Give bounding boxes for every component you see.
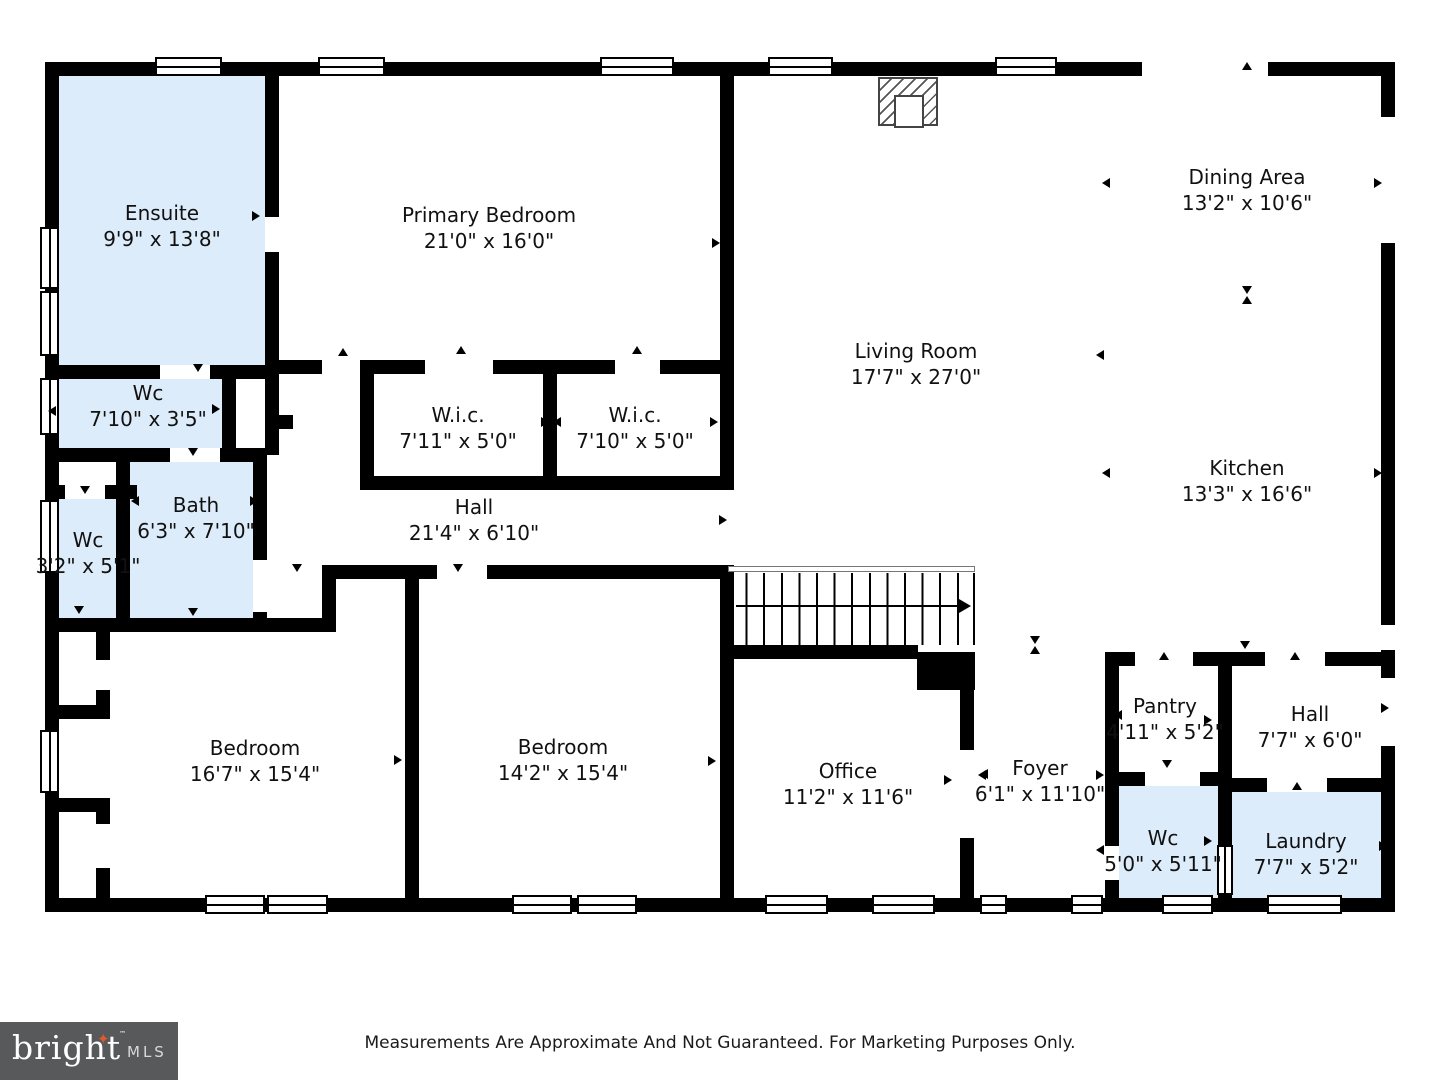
window [40,291,59,356]
door-arrow-icon [1242,62,1252,70]
room-name: Ensuite [103,200,221,226]
window [267,895,328,914]
wall [1218,778,1267,792]
wall [222,379,236,448]
room-label-living-room: Living Room17'7" x 27'0" [851,338,981,390]
room-label-bedroom-2: Bedroom14'2" x 15'4" [498,734,628,786]
window [577,895,637,914]
room-label-primary-bedroom: Primary Bedroom21'0" x 16'0" [402,202,576,254]
wall [493,360,615,374]
room-name: Dining Area [1182,164,1312,190]
wall [279,360,322,374]
room-label-dining-area: Dining Area13'2" x 10'6" [1182,164,1312,216]
fireplace-icon [878,77,938,126]
wall [210,365,279,379]
door-arrow-icon [1242,286,1252,294]
window [1267,895,1342,914]
window [40,730,59,793]
door-arrow-icon [710,417,718,427]
room-dimensions: 6'3" x 7'10" [137,518,255,544]
wall [45,448,170,462]
door-arrow-icon [1159,652,1169,660]
wall [487,565,734,579]
room-dimensions: 6'1" x 11'10" [975,781,1105,807]
disclaimer-text: Measurements Are Approximate And Not Gua… [0,1033,1440,1053]
door-arrow-icon [188,448,198,456]
wall [660,360,734,374]
window [980,895,1007,914]
room-name: Laundry [1254,828,1359,854]
wall [405,579,419,898]
door-arrow-icon [1096,350,1104,360]
room-name: Hall [409,494,539,520]
window [600,57,674,76]
door-arrow-icon [708,756,716,766]
room-dimensions: 13'2" x 10'6" [1182,190,1312,216]
room-name: W.i.c. [576,402,694,428]
wall-opening [1381,625,1395,650]
wall [96,690,110,719]
stair-treads [728,573,975,645]
wall [322,565,437,579]
door-arrow-icon [1379,841,1387,851]
window [768,57,833,76]
floorplan-page: Ensuite9'9" x 13'8"Primary Bedroom21'0" … [0,0,1440,1080]
door-arrow-icon [252,211,260,221]
door-arrow-icon [1381,703,1389,713]
window [512,895,572,914]
room-dimensions: 21'4" x 6'10" [409,520,539,546]
wall [917,652,975,690]
room-label-hall-1: Hall21'4" x 6'10" [409,494,539,546]
door-arrow-icon [188,608,198,616]
room-label-foyer: Foyer6'1" x 11'10" [975,755,1105,807]
stair-stringer [728,566,975,572]
door-arrow-icon [632,346,642,354]
room-name: Bedroom [190,735,320,761]
room-dimensions: 9'9" x 13'8" [103,226,221,252]
room-name: Kitchen [1182,455,1312,481]
room-label-wic-1: W.i.c.7'11" x 5'0" [399,402,517,454]
door-arrow-icon [1102,178,1110,188]
door-arrow-icon [1374,468,1382,478]
room-label-office: Office11'2" x 11'6" [783,758,913,810]
door-arrow-icon [212,404,220,414]
door-arrow-icon [719,515,727,525]
room-name: Wc [89,380,207,406]
window [40,227,59,289]
room-dimensions: 3'2" x 5'1" [36,553,141,579]
door-arrow-icon [1096,845,1104,855]
room-name: Primary Bedroom [402,202,576,228]
window [872,895,935,914]
door-arrow-icon [46,211,54,221]
door-arrow-icon [553,417,561,427]
door-arrow-icon [338,348,348,356]
door-arrow-icon [1374,178,1382,188]
room-dimensions: 7'7" x 6'0" [1258,727,1363,753]
wall [360,360,374,490]
room-name: Bath [137,492,255,518]
room-name: Living Room [851,338,981,364]
window [205,895,265,914]
room-dimensions: 5'0" x 5'11" [1104,851,1222,877]
door-arrow-icon [1290,652,1300,660]
door-arrow-icon [1030,646,1040,654]
room-dimensions: 16'7" x 15'4" [190,761,320,787]
door-arrow-icon [944,775,952,785]
door-arrow-icon [726,773,734,783]
room-name: Foyer [975,755,1105,781]
room-label-laundry: Laundry7'7" x 5'2" [1254,828,1359,880]
door-arrow-icon [1030,636,1040,644]
door-arrow-icon [1102,468,1110,478]
room-label-ensuite: Ensuite9'9" x 13'8" [103,200,221,252]
window [155,57,222,76]
room-label-wic-2: W.i.c.7'10" x 5'0" [576,402,694,454]
wall [960,838,974,898]
room-label-kitchen: Kitchen13'3" x 16'6" [1182,455,1312,507]
window [318,57,385,76]
wall [45,365,160,379]
wall [1105,772,1145,786]
room-dimensions: 14'2" x 15'4" [498,760,628,786]
room-dimensions: 13'3" x 16'6" [1182,481,1312,507]
wall [1105,652,1135,666]
wall [45,485,65,499]
room-label-wc-3: Wc5'0" x 5'11" [1104,825,1222,877]
wall [96,632,110,660]
wall [1325,652,1395,666]
wall [265,62,279,217]
room-name: Wc [36,527,141,553]
door-arrow-icon [1240,641,1250,649]
door-arrow-icon [292,564,302,572]
fireplace-opening [894,95,924,128]
window [995,57,1057,76]
wall [96,798,110,824]
door-arrow-icon [456,346,466,354]
room-dimensions: 7'10" x 3'5" [89,406,207,432]
wall-opening [1381,117,1395,243]
stair-direction-arrow-icon [959,599,971,613]
wall [265,415,293,429]
wall [45,618,336,632]
door-arrow-icon [48,406,56,416]
room-name: W.i.c. [399,402,517,428]
wall [1193,652,1265,666]
room-label-bath: Bath6'3" x 7'10" [137,492,255,544]
wall [365,360,425,374]
stair-direction-line [736,605,957,607]
wall [360,476,734,490]
room-label-pantry: Pantry4'11" x 5'2" [1106,693,1224,745]
room-label-bedroom-1: Bedroom16'7" x 15'4" [190,735,320,787]
door-arrow-icon [80,486,90,494]
wall [1327,778,1395,792]
wall [220,448,266,462]
room-name: Pantry [1106,693,1224,719]
door-arrow-icon [1162,760,1172,768]
floorplan-canvas: Ensuite9'9" x 13'8"Primary Bedroom21'0" … [0,0,1440,960]
room-dimensions: 4'11" x 5'2" [1106,719,1224,745]
room-name: Office [783,758,913,784]
door-arrow-icon [394,755,402,765]
room-dimensions: 11'2" x 11'6" [783,784,913,810]
wall [720,62,734,490]
room-dimensions: 7'10" x 5'0" [576,428,694,454]
room-name: Hall [1258,701,1363,727]
room-name: Bedroom [498,734,628,760]
room-label-hall-2: Hall7'7" x 6'0" [1258,701,1363,753]
wall [96,868,110,912]
wall [265,252,279,379]
door-arrow-icon [1242,296,1252,304]
door-arrow-icon [712,238,720,248]
room-dimensions: 17'7" x 27'0" [851,364,981,390]
room-dimensions: 7'11" x 5'0" [399,428,517,454]
wall [728,645,918,659]
room-label-wc-1: Wc7'10" x 3'5" [89,380,207,432]
door-arrow-icon [193,364,203,372]
window [765,895,828,914]
door-arrow-icon [541,417,549,427]
door-arrow-icon [453,564,463,572]
door-arrow-icon [842,651,852,659]
door-arrow-icon [408,755,416,765]
door-arrow-icon [1292,782,1302,790]
window [1162,895,1213,914]
door-arrow-icon [74,606,84,614]
wall [1105,880,1119,912]
room-label-wc-2: Wc3'2" x 5'1" [36,527,141,579]
staircase [728,566,975,645]
room-dimensions: 7'7" x 5'2" [1254,854,1359,880]
room-dimensions: 21'0" x 16'0" [402,228,576,254]
room-name: Wc [1104,825,1222,851]
window [1071,895,1103,914]
